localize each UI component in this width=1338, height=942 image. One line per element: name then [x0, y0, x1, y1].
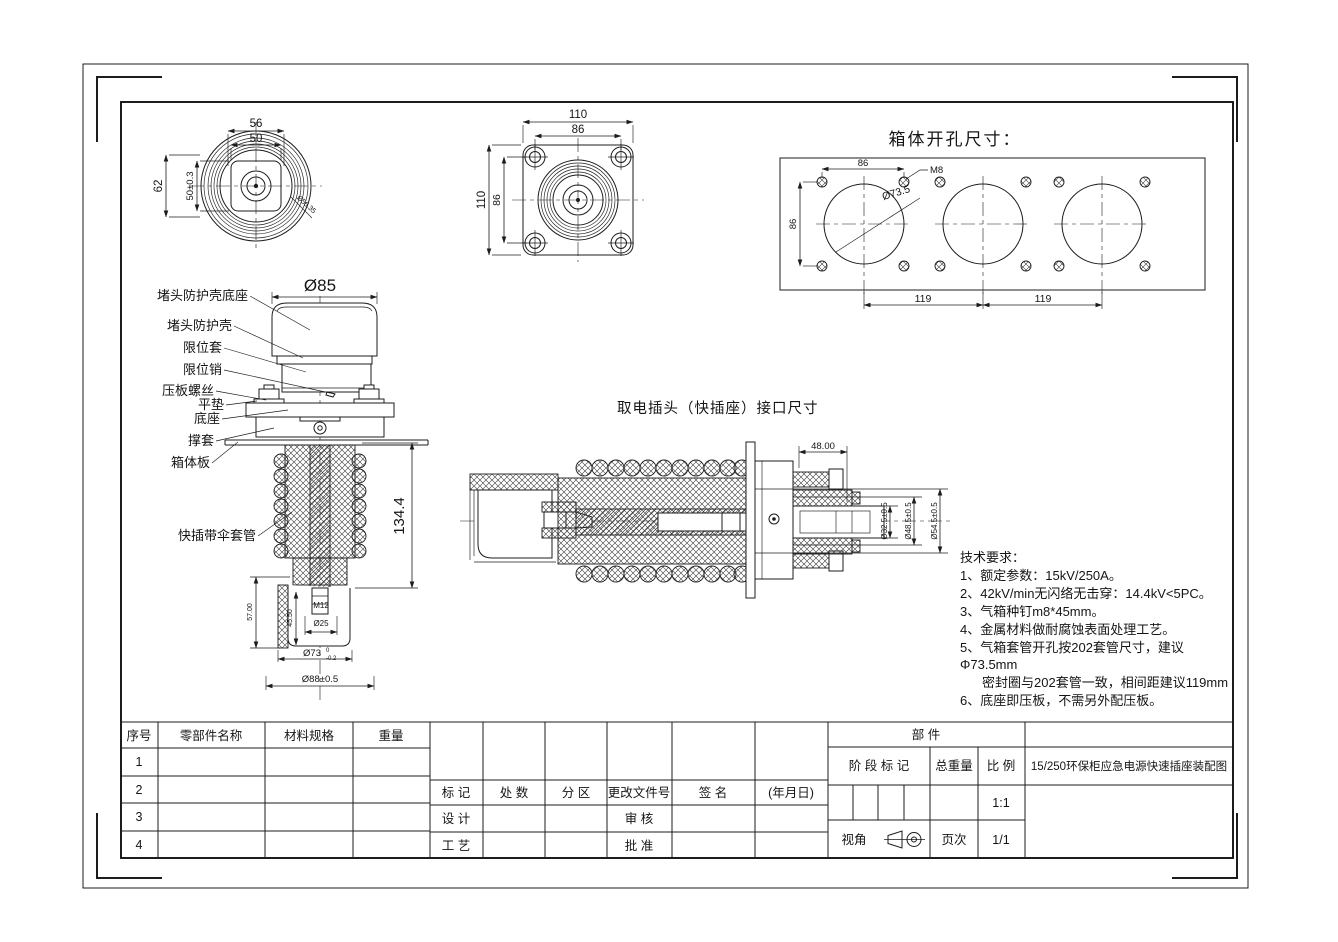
view-angle-label: 视角	[841, 832, 866, 847]
drawing-title: 15/250环保柜应急电源快速插座装配图	[1031, 759, 1227, 773]
side-interface-view: 取电插头（快插座）接口尺寸	[460, 400, 952, 598]
notes-line-8: 6、底座即压板，不需另外配压板。	[960, 693, 1162, 708]
revision-block: 标 记 处 数 分 区 更改文件号 签 名 (年月日) 设 计 审 核 工 艺 …	[442, 785, 814, 853]
cutout-title: 箱体开孔尺寸：	[889, 130, 1022, 149]
flange-top-view: 110 86 110 86	[476, 109, 644, 262]
page-value: 1/1	[992, 833, 1009, 847]
dim-d73-upper: 0	[326, 648, 330, 654]
stage-mark-label: 阶 段 标 记	[849, 758, 910, 773]
col-weight: 重量	[378, 728, 403, 743]
dim-50: 50	[250, 133, 263, 145]
plug-top-view: 56 50 62 50±0.3 Ø56.35	[153, 118, 322, 250]
dim-d73-base: Ø73	[303, 648, 321, 659]
dim-86-vertical: 86	[788, 219, 799, 230]
label-cap-base: 堵头防护壳底座	[157, 288, 248, 303]
dim-d88: Ø88±0.5	[302, 674, 338, 685]
dim-86-v: 86	[491, 194, 503, 206]
notes-line-4: 4、金属材料做耐腐蚀表面处理工艺。	[960, 622, 1175, 637]
notes-line-6: Φ73.5mm	[960, 657, 1017, 672]
label-clamp-screw: 压板螺丝	[162, 383, 214, 398]
scale-value: 1:1	[992, 796, 1009, 810]
dim-d48-5: Ø48.5±0.5	[904, 502, 913, 540]
col-material: 材料规格	[284, 728, 335, 743]
dim-62: 62	[153, 180, 165, 193]
notes-line-7: 密封圈与202套管一致，相间距建议119mm	[982, 675, 1228, 690]
box-cutout-view: 箱体开孔尺寸： M8 86 86	[780, 130, 1205, 309]
notes-title: 技术要求：	[960, 550, 1025, 565]
dim-119-left: 119	[915, 293, 932, 305]
row-4: 4	[136, 838, 143, 852]
dim-m12: M12	[313, 601, 329, 610]
dim-119-right: 119	[1035, 293, 1052, 305]
front-assembly-view: Ø85	[157, 276, 428, 700]
dim-57: 57.00	[247, 603, 254, 621]
scale-label: 比 例	[987, 759, 1015, 773]
dim-d85: Ø85	[304, 276, 336, 295]
notes-line-5: 5、气箱套管开孔按202套管尺寸，建议	[960, 640, 1184, 655]
cad-drawing: 56 50 62 50±0.3 Ø56.35	[0, 0, 1338, 942]
side-view-title: 取电插头（快插座）接口尺寸	[617, 400, 819, 417]
dim-45-5: 45.50	[287, 609, 294, 627]
notes-line-2: 2、42kV/min无闪络无击穿：14.4kV<5PC。	[960, 586, 1212, 601]
dim-110-h: 110	[569, 109, 587, 121]
dim-m8: M8	[930, 165, 943, 176]
label-cap: 堵头防护壳	[167, 318, 232, 333]
dim-d73-lower: -0.2	[326, 656, 337, 662]
process-label: 工 艺	[442, 839, 470, 853]
dim-d54-5: Ø54.5±0.5	[930, 502, 939, 540]
dim-48: 48.00	[811, 441, 835, 452]
insulator-sheds	[274, 445, 366, 588]
cutout-holes	[816, 176, 1150, 296]
rev-signature: 签 名	[699, 785, 727, 800]
label-limit-sleeve: 限位套	[183, 340, 222, 355]
row-1: 1	[136, 755, 143, 769]
label-box-plate: 箱体板	[171, 455, 210, 470]
notes-line-3: 3、气箱种钉m8*45mm。	[960, 604, 1104, 619]
label-shed-bushing: 快插带伞套管	[178, 528, 256, 543]
page-label: 页次	[941, 833, 966, 847]
component-label: 部 件	[912, 727, 940, 742]
row-3: 3	[136, 810, 143, 824]
rev-doc-no: 更改文件号	[608, 785, 671, 800]
projection-symbol-icon	[884, 831, 925, 848]
dim-56: 56	[250, 118, 263, 130]
title-block-right: 部 件 阶 段 标 记 总重量 比 例 15/250环保柜应急电源快速插座装配图…	[841, 727, 1227, 848]
rev-mark: 标 记	[442, 786, 471, 800]
col-seq: 序号	[126, 728, 151, 743]
technical-notes: 技术要求： 1、额定参数：15kV/250A。 2、42kV/min无闪络无击穿…	[960, 550, 1228, 708]
total-weight-label: 总重量	[935, 758, 973, 773]
dim-d25: Ø25	[313, 619, 329, 628]
col-part-name: 零部件名称	[180, 728, 243, 743]
check-label: 审 核	[625, 811, 654, 826]
row-2: 2	[136, 783, 143, 797]
rev-count: 处 数	[500, 785, 529, 800]
dim-110-v: 110	[476, 191, 488, 209]
dim-d32-5: Ø32.5±0.5	[880, 502, 889, 540]
drawing-sheet: 56 50 62 50±0.3 Ø56.35	[0, 0, 1338, 942]
notes-line-1: 1、额定参数：15kV/250A。	[960, 568, 1122, 583]
dim-86-h: 86	[572, 124, 585, 136]
label-base: 底座	[194, 411, 220, 426]
dim-134-4: 134.4	[391, 497, 408, 535]
rev-zone: 分 区	[562, 786, 590, 800]
approve-label: 批 准	[625, 838, 653, 853]
label-limit-pin: 限位销	[183, 362, 222, 377]
rev-date: (年月日)	[768, 786, 814, 800]
title-block: 序号 零部件名称 材料规格 重量 1 2 3 4 标 记 处 数 分 区 更改文…	[121, 722, 1233, 858]
design-label: 设 计	[442, 811, 470, 826]
label-flat-washer: 平垫	[198, 397, 224, 412]
dim-50-tol: 50±0.3	[185, 172, 196, 201]
label-support-sleeve: 撑套	[188, 433, 214, 448]
dim-86-horizontal: 86	[858, 158, 869, 169]
